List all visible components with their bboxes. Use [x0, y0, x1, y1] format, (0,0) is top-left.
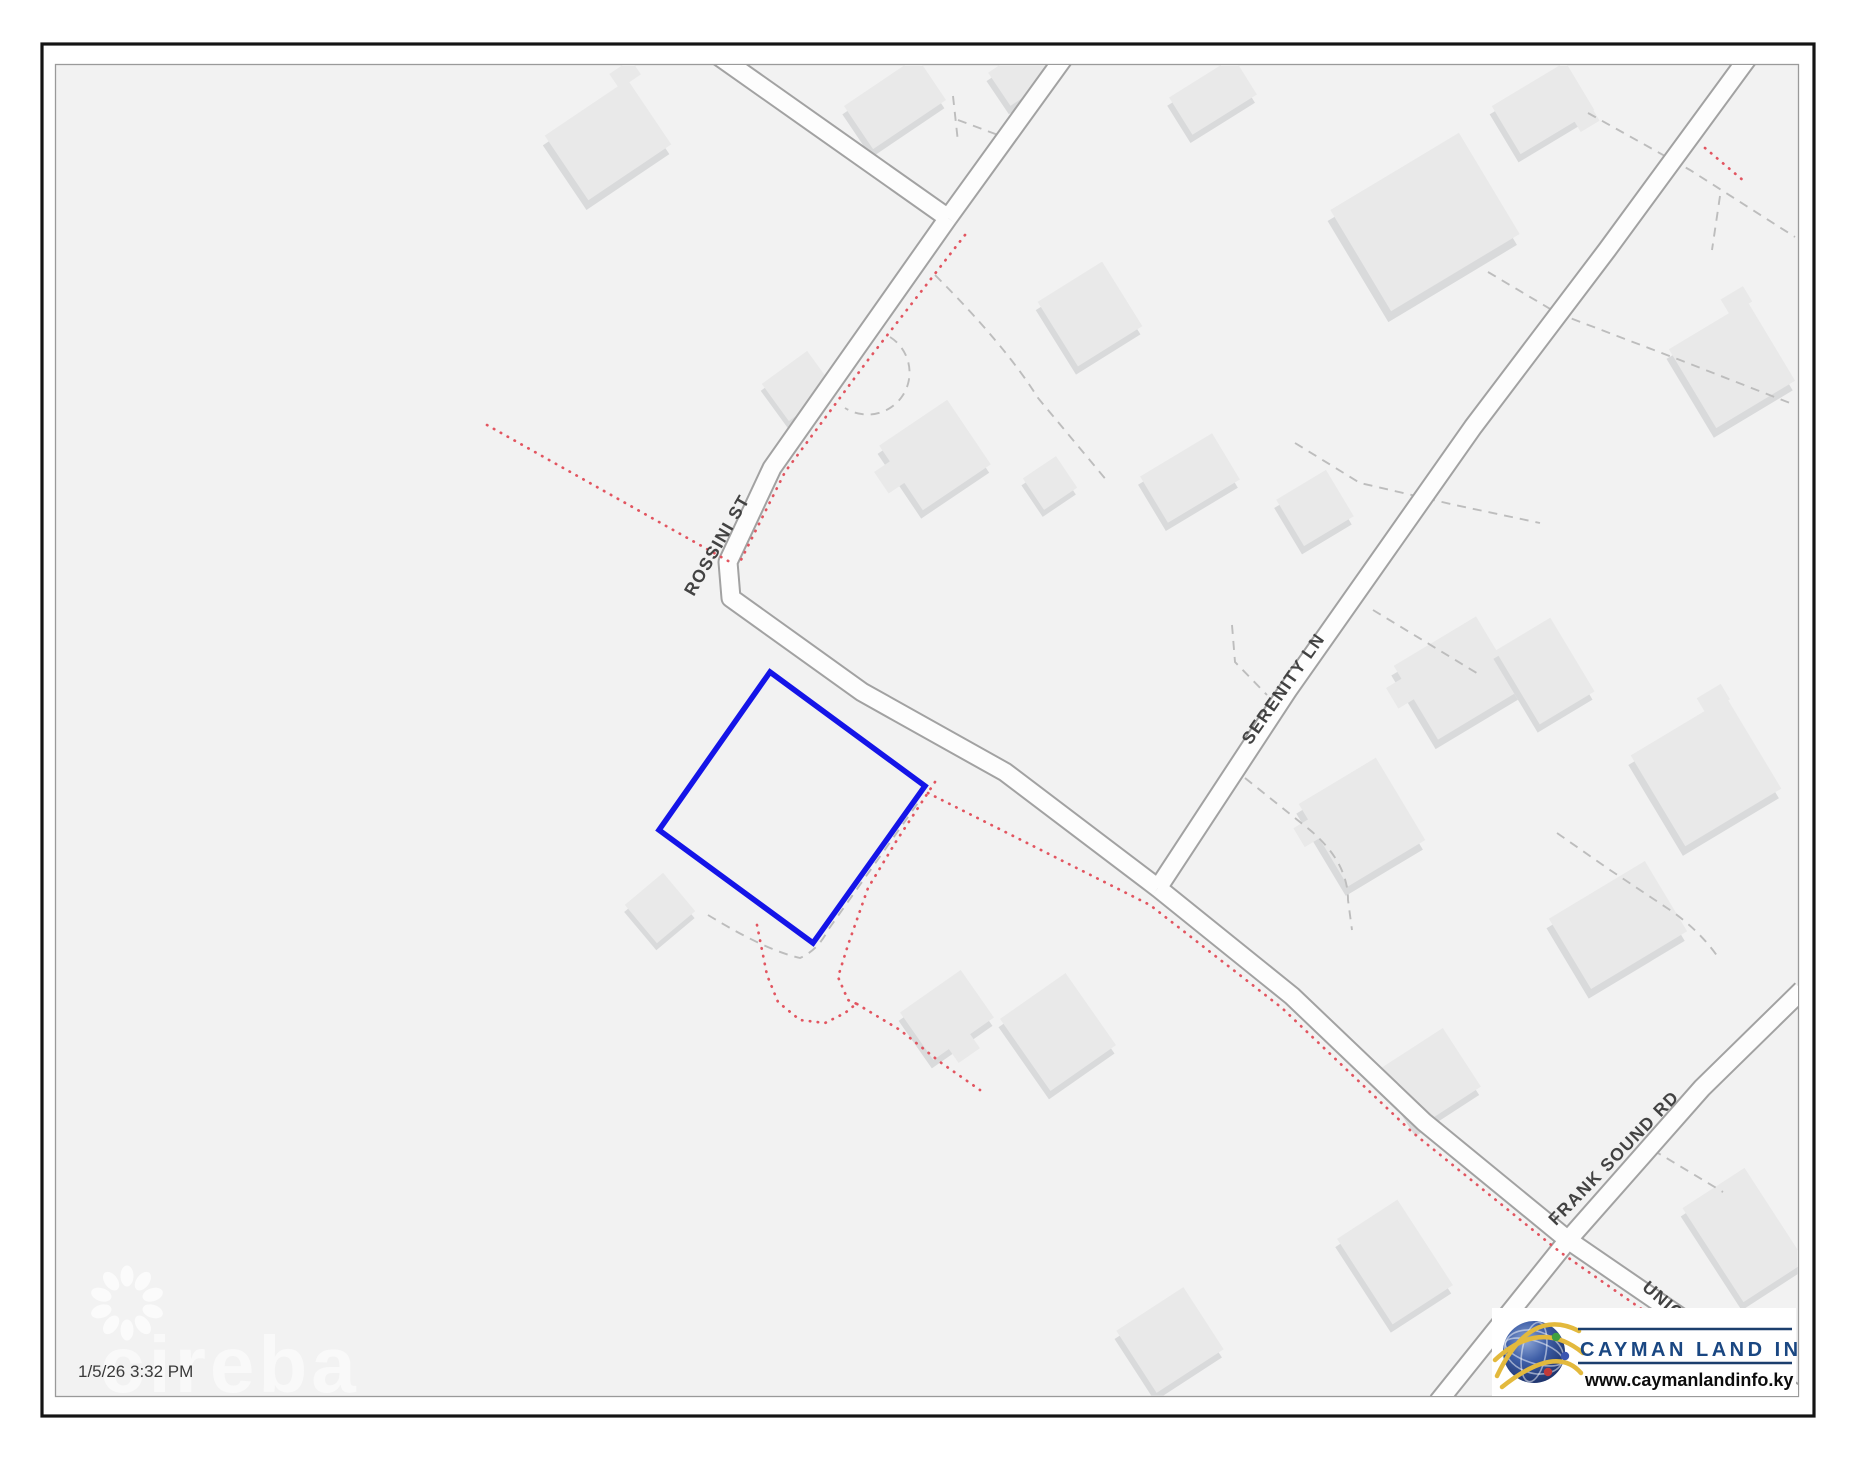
timestamp: 1/5/26 3:32 PM — [78, 1362, 193, 1381]
logo-title: CAYMAN LAND INFO — [1580, 1339, 1836, 1361]
globe-dot-red — [1544, 1368, 1552, 1376]
logo: CAYMAN LAND INFO www.caymanlandinfo.ky — [1492, 1308, 1836, 1396]
globe-dot-blue — [1561, 1352, 1569, 1360]
globe-dot-green — [1552, 1333, 1560, 1341]
logo-website: www.caymanlandinfo.ky — [1584, 1370, 1793, 1390]
